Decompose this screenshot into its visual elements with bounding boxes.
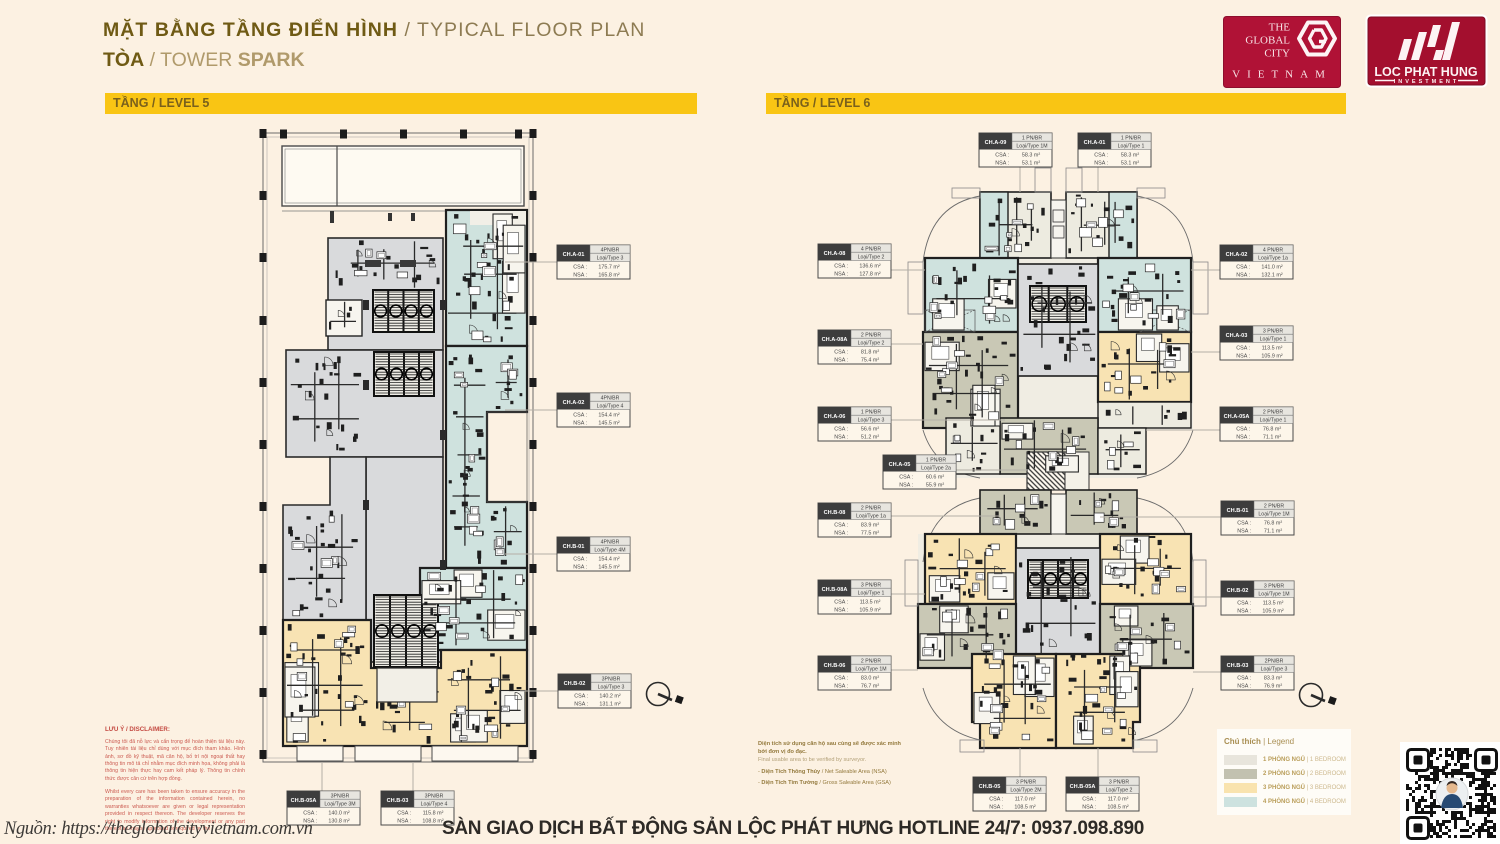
svg-text:NSA :: NSA : xyxy=(1236,273,1250,279)
svg-text:51.2 m²: 51.2 m² xyxy=(861,435,879,441)
svg-text:CSA :: CSA : xyxy=(995,153,1009,159)
svg-text:132.1 m²: 132.1 m² xyxy=(1261,273,1282,279)
svg-text:Loại/Type 4: Loại/Type 4 xyxy=(421,802,448,808)
svg-text:CH.B-08: CH.B-08 xyxy=(824,510,846,516)
svg-text:CH.B-03: CH.B-03 xyxy=(1227,663,1249,669)
svg-text:CSA :: CSA : xyxy=(834,523,848,529)
svg-text:3 PN/BR: 3 PN/BR xyxy=(861,582,881,588)
svg-text:NSA :: NSA : xyxy=(1094,161,1108,167)
svg-text:CH.A-08: CH.A-08 xyxy=(824,251,846,257)
svg-text:NSA :: NSA : xyxy=(995,161,1009,167)
svg-text:55.9 m²: 55.9 m² xyxy=(926,483,944,489)
svg-text:CSA :: CSA : xyxy=(989,797,1003,803)
svg-text:4PN/BR: 4PN/BR xyxy=(601,539,620,545)
svg-text:Loại/Type 2: Loại/Type 2 xyxy=(858,255,885,261)
svg-text:CSA :: CSA : xyxy=(1237,676,1251,682)
svg-text:CH.A-05A: CH.A-05A xyxy=(1224,414,1250,420)
svg-text:CH.B-02: CH.B-02 xyxy=(1227,588,1249,594)
svg-text:3 PN/BR: 3 PN/BR xyxy=(1016,779,1036,785)
svg-text:145.5 m²: 145.5 m² xyxy=(598,421,619,427)
svg-text:71.1 m²: 71.1 m² xyxy=(1264,529,1282,535)
svg-text:77.5 m²: 77.5 m² xyxy=(861,531,879,537)
svg-text:Loại/Type 1a: Loại/Type 1a xyxy=(1258,256,1288,262)
svg-text:131.1 m²: 131.1 m² xyxy=(599,702,620,708)
svg-text:165.8 m²: 165.8 m² xyxy=(598,273,619,279)
svg-text:4 PN/BR: 4 PN/BR xyxy=(1263,247,1283,253)
svg-text:CH.B-05: CH.B-05 xyxy=(979,784,1001,790)
svg-text:NSA :: NSA : xyxy=(574,702,588,708)
svg-text:1 PN/BR: 1 PN/BR xyxy=(926,457,946,463)
svg-text:NSA :: NSA : xyxy=(899,483,913,489)
svg-text:CSA :: CSA : xyxy=(397,811,411,817)
svg-text:113.5 m²: 113.5 m² xyxy=(1262,346,1283,352)
svg-text:76.7 m²: 76.7 m² xyxy=(861,684,879,690)
svg-text:CH.B-05A: CH.B-05A xyxy=(291,798,317,804)
svg-text:CSA :: CSA : xyxy=(573,413,587,419)
svg-text:CH.A-05: CH.A-05 xyxy=(889,462,911,468)
svg-text:105.9 m²: 105.9 m² xyxy=(1262,609,1283,615)
svg-text:53.1 m²: 53.1 m² xyxy=(1022,161,1040,167)
svg-text:CSA :: CSA : xyxy=(834,676,848,682)
svg-text:3 PN/BR: 3 PN/BR xyxy=(1264,583,1284,589)
svg-text:75.4 m²: 75.4 m² xyxy=(861,358,879,364)
svg-text:CH.B-08A: CH.B-08A xyxy=(822,587,848,593)
svg-text:NSA :: NSA : xyxy=(989,805,1003,811)
svg-text:140.2 m²: 140.2 m² xyxy=(599,694,620,700)
svg-text:CH.A-09: CH.A-09 xyxy=(985,140,1007,146)
svg-text:NSA :: NSA : xyxy=(834,358,848,364)
svg-text:3PN/BR: 3PN/BR xyxy=(425,793,444,799)
svg-text:1 PN/BR: 1 PN/BR xyxy=(861,409,881,415)
svg-text:NSA :: NSA : xyxy=(1237,529,1251,535)
svg-text:2 PN/BR: 2 PN/BR xyxy=(861,658,881,664)
svg-text:CSA :: CSA : xyxy=(1236,346,1250,352)
svg-text:CSA :: CSA : xyxy=(1237,601,1251,607)
svg-text:1 PN/BR: 1 PN/BR xyxy=(1121,135,1141,141)
svg-text:76.8 m²: 76.8 m² xyxy=(1263,427,1281,433)
svg-text:CH.B-05A: CH.B-05A xyxy=(1070,784,1096,790)
svg-text:Loại/Type 3: Loại/Type 3 xyxy=(598,685,625,691)
svg-text:136.6 m²: 136.6 m² xyxy=(859,264,880,270)
svg-text:76.8 m²: 76.8 m² xyxy=(1264,521,1282,527)
svg-text:Loại/Type 2M: Loại/Type 2M xyxy=(1010,788,1041,794)
svg-text:105.9 m²: 105.9 m² xyxy=(859,608,880,614)
svg-text:CSA :: CSA : xyxy=(1236,427,1250,433)
svg-text:71.1 m²: 71.1 m² xyxy=(1263,435,1281,441)
svg-text:Loại/Type 3: Loại/Type 3 xyxy=(858,418,885,424)
svg-text:CH.B-01: CH.B-01 xyxy=(563,544,585,550)
svg-text:175.7 m²: 175.7 m² xyxy=(598,265,619,271)
svg-text:Loại/Type 1: Loại/Type 1 xyxy=(1118,144,1145,150)
svg-text:2 PN/BR: 2 PN/BR xyxy=(861,505,881,511)
svg-text:3 PN/BR: 3 PN/BR xyxy=(1263,328,1283,334)
svg-text:NSA :: NSA : xyxy=(1237,684,1251,690)
svg-text:154.4 m²: 154.4 m² xyxy=(598,413,619,419)
svg-text:4PN/BR: 4PN/BR xyxy=(601,395,620,401)
svg-text:CSA :: CSA : xyxy=(834,264,848,270)
svg-text:CSA :: CSA : xyxy=(573,557,587,563)
svg-text:CSA :: CSA : xyxy=(834,600,848,606)
svg-text:NSA :: NSA : xyxy=(1082,805,1096,811)
svg-text:Loại/Type 3M: Loại/Type 3M xyxy=(324,802,355,808)
svg-text:CSA :: CSA : xyxy=(1082,797,1096,803)
svg-text:113.5 m²: 113.5 m² xyxy=(1263,601,1284,607)
svg-text:CSA :: CSA : xyxy=(1094,153,1108,159)
svg-text:58.3 m²: 58.3 m² xyxy=(1121,153,1139,159)
svg-text:81.8 m²: 81.8 m² xyxy=(861,350,879,356)
svg-text:Loại/Type 1a: Loại/Type 1a xyxy=(856,514,886,520)
svg-text:108.5 m²: 108.5 m² xyxy=(1107,805,1128,811)
svg-text:CSA :: CSA : xyxy=(303,811,317,817)
svg-text:108.5 m²: 108.5 m² xyxy=(1014,805,1035,811)
svg-text:NSA :: NSA : xyxy=(834,531,848,537)
svg-text:Loại/Type 2a: Loại/Type 2a xyxy=(921,466,951,472)
svg-text:CH.A-02: CH.A-02 xyxy=(1226,252,1248,258)
svg-text:3PN/BR: 3PN/BR xyxy=(602,676,621,682)
svg-text:83.9 m²: 83.9 m² xyxy=(861,523,879,529)
svg-text:Loại/Type 3: Loại/Type 3 xyxy=(597,256,624,262)
svg-text:CSA :: CSA : xyxy=(574,694,588,700)
svg-text:1 PN/BR: 1 PN/BR xyxy=(1022,135,1042,141)
svg-text:115.8 m²: 115.8 m² xyxy=(423,811,444,817)
svg-text:4PN/BR: 4PN/BR xyxy=(601,247,620,253)
svg-text:CH.B-06: CH.B-06 xyxy=(824,663,846,669)
svg-text:NSA :: NSA : xyxy=(1236,354,1250,360)
svg-text:Loại/Type 1: Loại/Type 1 xyxy=(1260,418,1287,424)
svg-text:CH.B-02: CH.B-02 xyxy=(564,681,586,687)
svg-text:Loại/Type 4: Loại/Type 4 xyxy=(597,404,624,410)
svg-text:Loại/Type 4M: Loại/Type 4M xyxy=(594,548,625,554)
svg-text:76.9 m²: 76.9 m² xyxy=(1264,684,1282,690)
svg-text:Loại/Type 2: Loại/Type 2 xyxy=(1106,788,1133,794)
svg-text:NSA :: NSA : xyxy=(834,608,848,614)
svg-text:4 PN/BR: 4 PN/BR xyxy=(861,246,881,252)
svg-text:145.5 m²: 145.5 m² xyxy=(598,565,619,571)
svg-text:NSA :: NSA : xyxy=(1236,435,1250,441)
svg-text:NSA :: NSA : xyxy=(834,272,848,278)
svg-text:58.3 m²: 58.3 m² xyxy=(1022,153,1040,159)
svg-text:CSA :: CSA : xyxy=(1236,265,1250,271)
svg-text:127.8 m²: 127.8 m² xyxy=(859,272,880,278)
svg-text:2PN/BR: 2PN/BR xyxy=(1265,658,1284,664)
svg-text:2 PN/BR: 2 PN/BR xyxy=(1263,409,1283,415)
svg-text:CH.B-01: CH.B-01 xyxy=(1227,508,1249,514)
svg-text:140.0 m²: 140.0 m² xyxy=(328,811,349,817)
svg-text:3PN/BR: 3PN/BR xyxy=(331,793,350,799)
svg-text:CH.A-02: CH.A-02 xyxy=(563,400,585,406)
svg-text:Loại/Type 2: Loại/Type 2 xyxy=(858,341,885,347)
svg-text:CSA :: CSA : xyxy=(1237,521,1251,527)
svg-text:Loại/Type 1M: Loại/Type 1M xyxy=(1016,144,1047,150)
svg-text:NSA :: NSA : xyxy=(1237,609,1251,615)
svg-text:Loại/Type 1M: Loại/Type 1M xyxy=(1258,512,1289,518)
svg-text:NSA :: NSA : xyxy=(573,565,587,571)
svg-text:117.0 m²: 117.0 m² xyxy=(1015,797,1036,803)
svg-text:60.6 m²: 60.6 m² xyxy=(926,475,944,481)
svg-text:CH.A-03: CH.A-03 xyxy=(1226,333,1248,339)
svg-text:NSA :: NSA : xyxy=(573,273,587,279)
svg-text:CSA :: CSA : xyxy=(834,350,848,356)
svg-text:2 PN/BR: 2 PN/BR xyxy=(1264,503,1284,509)
svg-text:141.0 m²: 141.0 m² xyxy=(1261,265,1282,271)
svg-text:154.4 m²: 154.4 m² xyxy=(598,557,619,563)
svg-text:2 PN/BR: 2 PN/BR xyxy=(861,332,881,338)
svg-text:NSA :: NSA : xyxy=(834,435,848,441)
svg-text:NSA :: NSA : xyxy=(834,684,848,690)
svg-text:CH.A-01: CH.A-01 xyxy=(563,252,585,258)
svg-text:83.0 m²: 83.0 m² xyxy=(861,676,879,682)
svg-text:Loại/Type 1: Loại/Type 1 xyxy=(858,591,885,597)
svg-text:CSA :: CSA : xyxy=(834,427,848,433)
svg-text:53.1 m²: 53.1 m² xyxy=(1121,161,1139,167)
svg-text:105.9 m²: 105.9 m² xyxy=(1261,354,1282,360)
svg-text:3 PN/BR: 3 PN/BR xyxy=(1109,779,1129,785)
svg-text:117.0 m²: 117.0 m² xyxy=(1108,797,1129,803)
svg-text:CSA :: CSA : xyxy=(573,265,587,271)
svg-text:Loại/Type 1M: Loại/Type 1M xyxy=(855,667,886,673)
svg-text:CH.B-03: CH.B-03 xyxy=(387,798,409,804)
svg-text:CH.A-01: CH.A-01 xyxy=(1084,140,1106,146)
svg-text:CH.A-06: CH.A-06 xyxy=(824,414,846,420)
svg-text:CSA :: CSA : xyxy=(899,475,913,481)
svg-text:Loại/Type 3: Loại/Type 3 xyxy=(1261,667,1288,673)
svg-text:130.8 m²: 130.8 m² xyxy=(328,819,349,825)
svg-text:83.3 m²: 83.3 m² xyxy=(1264,676,1282,682)
svg-text:56.6 m²: 56.6 m² xyxy=(861,427,879,433)
svg-text:113.5 m²: 113.5 m² xyxy=(860,600,881,606)
svg-text:Loại/Type 1M: Loại/Type 1M xyxy=(1258,592,1289,598)
svg-text:Loại/Type 1: Loại/Type 1 xyxy=(1260,337,1287,343)
svg-text:CH.A-08A: CH.A-08A xyxy=(822,337,848,343)
svg-text:NSA :: NSA : xyxy=(573,421,587,427)
